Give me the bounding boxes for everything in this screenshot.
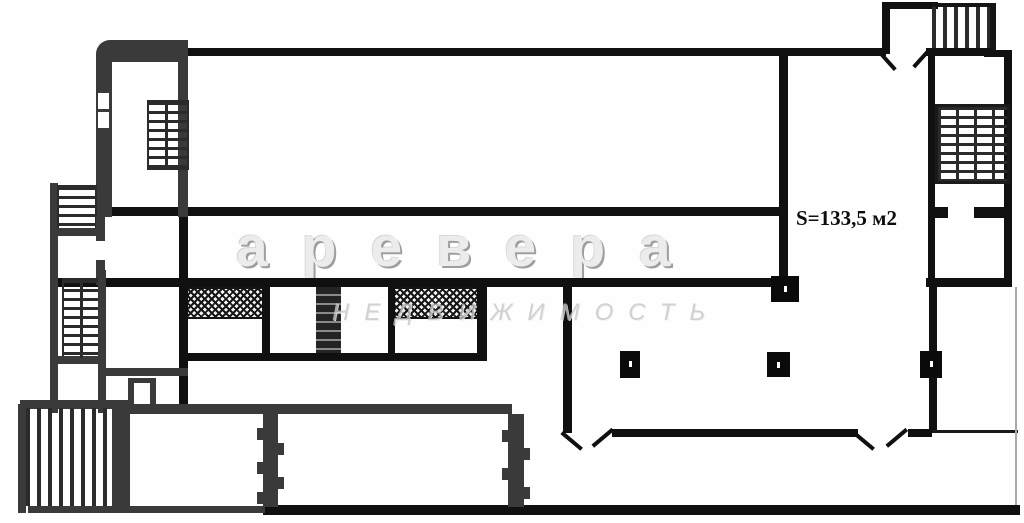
- wall-left-stair-right: [98, 270, 106, 413]
- wall-room2-top: [276, 404, 512, 414]
- wall-left-room-top: [98, 368, 188, 376]
- wall-bumpy-a: [263, 414, 278, 507]
- wall-bumpy-b-n3: [523, 448, 530, 460]
- wall-bumpy-b-n1: [502, 430, 509, 442]
- column-room-1: [620, 351, 640, 378]
- wall-bumpy-a-n4: [277, 443, 284, 455]
- stair-divider-left-main: [80, 278, 83, 358]
- wall-bl-left: [18, 404, 26, 513]
- wall-bumpy-a-n5: [277, 477, 284, 489]
- wall-stairwell-left: [928, 55, 935, 283]
- wall-left-inner-upper: [96, 217, 105, 241]
- wall-bumpy-a-n2: [257, 462, 264, 474]
- stair-divider-block: [165, 100, 168, 166]
- door-jamb-vestibule-left: [879, 52, 897, 71]
- wall-corridor-bottom: [58, 278, 796, 287]
- wall-bigroom-bottom-right: [908, 429, 932, 437]
- wall-hall-right: [779, 52, 788, 300]
- wall-left-upper-stair-bottom: [50, 228, 102, 236]
- wall-vestibule-left: [882, 2, 890, 54]
- line-right-bottom: [930, 430, 1018, 433]
- column-junction: [771, 276, 799, 302]
- door-jamb-bl-inner: [592, 428, 614, 448]
- stair-top-left-block: [147, 100, 189, 170]
- door-jamb-br-inner: [886, 428, 908, 448]
- column-right-wall: [920, 351, 942, 378]
- wall-vestibule-top: [882, 2, 938, 9]
- wall-bottom-main: [263, 505, 1020, 515]
- wall-left-below-stair: [50, 356, 102, 364]
- wall-bigroom-bottom: [612, 429, 858, 437]
- watermark-subtitle: НЕДВИЖИМОСТЬ: [332, 299, 720, 327]
- wall-band-bottom: [179, 353, 487, 361]
- wall-stairwell-door-right: [974, 207, 1005, 218]
- wall-bl-small-top: [128, 378, 156, 383]
- wall-bumpy-b: [508, 414, 524, 507]
- wall-bottom-left-gray: [28, 506, 265, 513]
- wall-band-left: [179, 217, 188, 413]
- area-label: S=133,5 м2: [796, 206, 897, 231]
- door-jamb-bl-outer: [560, 431, 582, 451]
- wall-under-top-stair: [926, 48, 992, 56]
- wall-stairwell-door-left: [935, 207, 948, 218]
- window-slot-1: [98, 93, 109, 109]
- wall-hall-bottom: [100, 207, 788, 216]
- wall-bl-bar: [112, 404, 130, 508]
- stair-left-upper: [57, 185, 97, 234]
- wall-room1-top: [130, 404, 276, 414]
- wall-stairwell-bottom: [926, 278, 1012, 287]
- window-slot-2: [98, 112, 109, 128]
- column-room-2: [767, 352, 790, 377]
- hatch-sanitary-left: [184, 287, 268, 319]
- door-jamb-br-outer: [852, 431, 874, 451]
- wall-band-a-right: [262, 287, 270, 361]
- wall-block-left: [96, 55, 112, 217]
- wall-bumpy-b-n4: [523, 487, 530, 499]
- wall-bumpy-b-n2: [502, 468, 509, 480]
- stair-bottom-left: [26, 408, 114, 506]
- line-right-edge: [1015, 287, 1017, 507]
- wall-bumpy-a-n3: [257, 492, 264, 504]
- wall-bumpy-a-n1: [257, 428, 264, 440]
- watermark-brand: аревера: [236, 214, 705, 280]
- floor-plan: аревера: [0, 0, 1024, 523]
- stair-right-double-flight: [935, 104, 1010, 184]
